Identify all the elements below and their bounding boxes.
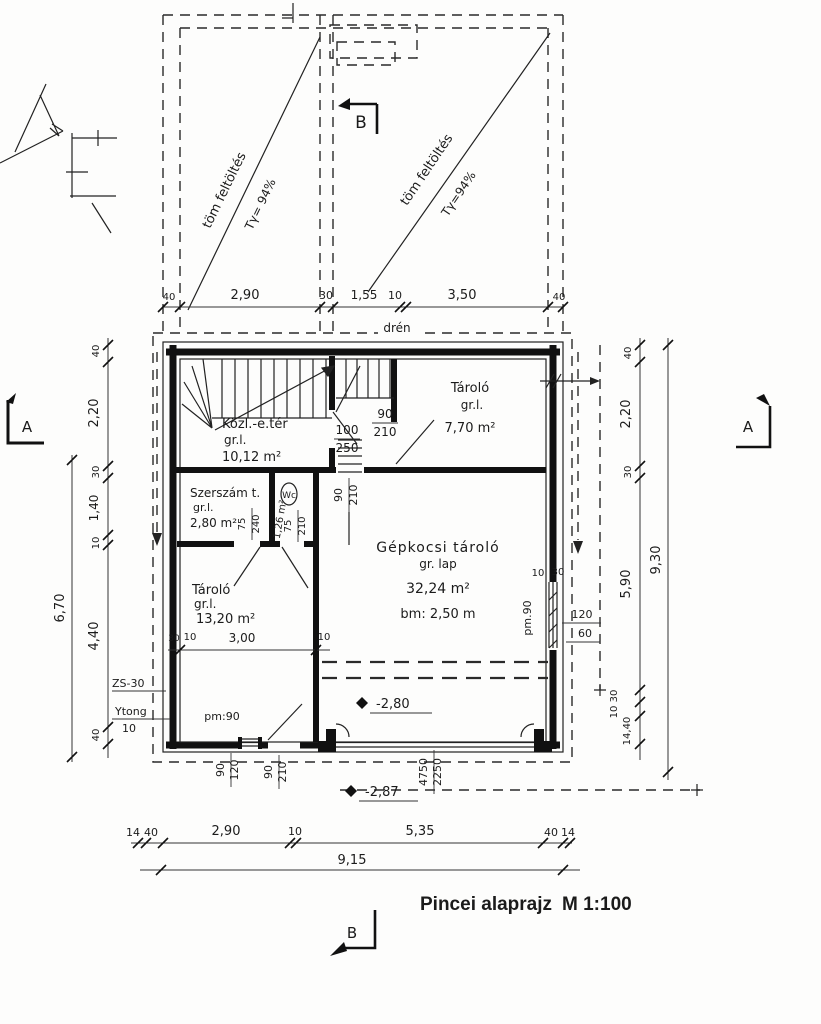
dim-label: 100 bbox=[336, 423, 359, 437]
bottom-door-swing bbox=[268, 704, 302, 740]
dim-total-left: 6,70 bbox=[53, 594, 68, 623]
floor-plan-page: töm feltöltés Tγ= 94% töm feltöltés Tγ=9… bbox=[0, 0, 821, 1024]
garage-dashed-lines bbox=[322, 662, 548, 678]
dim-label: 10 bbox=[609, 706, 620, 719]
drawing-title: Pincei alaprajz M 1:100 bbox=[420, 894, 632, 915]
dim-label: 250 bbox=[336, 441, 359, 455]
dim-label: 75 bbox=[283, 520, 294, 533]
dim-label: 2,90 bbox=[231, 288, 260, 303]
room-storage-left-floor: gr.l. bbox=[194, 597, 216, 611]
wc-door-swing bbox=[282, 547, 308, 588]
dim-label: 4750 bbox=[417, 758, 430, 786]
wc-label: Wc bbox=[282, 491, 296, 501]
garage-gate bbox=[318, 724, 552, 752]
section-label-b: B bbox=[347, 924, 357, 942]
drain-label: drén bbox=[383, 321, 410, 335]
dim-label: 40 bbox=[163, 292, 176, 303]
room-garage-height: bm: 2,50 m bbox=[400, 607, 475, 622]
dim-label: 5,35 bbox=[406, 824, 435, 839]
dim-label: 14 bbox=[561, 826, 575, 839]
dim-label: 2,20 bbox=[87, 399, 102, 428]
wall-type-label: ZS-30 bbox=[112, 677, 144, 690]
parapet-bottom-label: pm:90 bbox=[204, 710, 239, 723]
dim-label: 120 bbox=[572, 608, 593, 621]
dim-label: 14,40 bbox=[622, 717, 633, 746]
dimension-chain-top: 40 2,90 30 1,55 10 3,50 40 bbox=[158, 288, 568, 312]
level-garage: -2,80 bbox=[376, 697, 410, 712]
dim-label: 5,90 bbox=[619, 570, 634, 599]
dim-label: 10 bbox=[288, 825, 302, 838]
dim-label: 3,00 bbox=[229, 631, 256, 645]
room-tools-area: 2,80 m² bbox=[190, 516, 237, 530]
dim-label: 2,20 bbox=[619, 400, 634, 429]
dim-label: 10 bbox=[91, 537, 102, 550]
room-storage-left-name: Tároló bbox=[191, 583, 230, 598]
dimension-chain-right: 40 2,20 30 5,90 30 10 14,40 9,30 bbox=[609, 338, 673, 780]
block-type-label: Ytong bbox=[114, 705, 147, 718]
dim-label: 40 bbox=[91, 729, 102, 742]
dim-label: 240 bbox=[251, 514, 262, 533]
dimension-chain-bottom: 14 40 2,90 10 5,35 40 14 9,15 bbox=[126, 824, 580, 875]
dim-label: 40 bbox=[553, 292, 566, 303]
room-garage-area: 32,24 m² bbox=[406, 581, 470, 597]
room-tools-name: Szerszám t. bbox=[190, 486, 260, 500]
section-marker-b-top: B bbox=[338, 98, 377, 134]
section-label-b: B bbox=[355, 113, 367, 133]
room-hall-floor: gr.l. bbox=[224, 433, 246, 447]
dim-label: 120 bbox=[228, 760, 241, 781]
dim-label: 90 bbox=[377, 407, 392, 421]
section-marker-b-bottom: B bbox=[330, 910, 375, 956]
level-outside: -2,87 bbox=[365, 785, 399, 800]
dim-label: 10 bbox=[388, 289, 402, 302]
dim-total-right: 9,30 bbox=[649, 546, 664, 575]
backfill-right-value: Tγ=94% bbox=[438, 169, 479, 220]
room-storage-top-name: Tároló bbox=[450, 381, 489, 396]
dim-total-bottom: 9,15 bbox=[338, 853, 367, 868]
backfill-left-label: töm feltöltés bbox=[200, 150, 250, 231]
storage-top-door-swing bbox=[396, 420, 434, 464]
parapet-right-label: pm.90 bbox=[521, 600, 534, 635]
dim-label: 4,40 bbox=[87, 622, 102, 651]
dim-label: 40 bbox=[91, 345, 102, 358]
dim-label: 90 bbox=[332, 488, 345, 502]
dim-label: 40 bbox=[544, 826, 558, 839]
dim-label: 90 bbox=[214, 763, 227, 777]
dim-label: 30 bbox=[168, 634, 180, 644]
block-size-label: 10 bbox=[122, 722, 136, 735]
title-text: Pincei alaprajz bbox=[420, 894, 552, 915]
tools-door-swing bbox=[234, 547, 260, 586]
room-tools-floor: gr.l. bbox=[193, 501, 214, 514]
dim-label: 210 bbox=[347, 485, 360, 506]
section-marker-a-left: A bbox=[6, 393, 44, 443]
room-storage-left-area: 13,20 m² bbox=[196, 612, 255, 627]
dim-label: 75 bbox=[237, 518, 248, 531]
title-scale: M 1:100 bbox=[562, 894, 632, 915]
room-garage-name: Gépkocsi tároló bbox=[376, 540, 499, 556]
backfill-area: töm feltöltés Tγ= 94% töm feltöltés Tγ=9… bbox=[163, 3, 563, 333]
dim-label: 14 bbox=[126, 826, 140, 839]
wall-notes: ZS-30 Ytong 10 bbox=[112, 677, 170, 735]
dim-label: 10 bbox=[532, 568, 545, 579]
dim-label: 10 bbox=[184, 632, 197, 643]
section-label-a: A bbox=[743, 418, 754, 436]
dim-label: 210 bbox=[297, 516, 308, 535]
floor-plan-svg: töm feltöltés Tγ= 94% töm feltöltés Tγ=9… bbox=[0, 0, 821, 1024]
room-hall-area: 10,12 m² bbox=[222, 450, 281, 465]
room-hall-name: Közl.-e.tér bbox=[222, 417, 288, 432]
dim-label: 10 bbox=[318, 632, 331, 643]
right-window: 10 30 pm.90 120 60 bbox=[521, 374, 601, 648]
section-label-a: A bbox=[22, 418, 33, 436]
room-storage-top-floor: gr.l. bbox=[461, 398, 483, 412]
backfill-left-value: Tγ= 94% bbox=[242, 176, 279, 232]
sketch-north-arrow bbox=[0, 84, 117, 233]
room-garage-floor: gr. lap bbox=[419, 557, 456, 571]
dim-label: 3,50 bbox=[448, 288, 477, 303]
dim-label: 30 bbox=[609, 690, 620, 703]
section-marker-a-right: A bbox=[736, 394, 770, 447]
room-storage-top-area: 7,70 m² bbox=[445, 421, 496, 436]
dim-label: 40 bbox=[623, 347, 634, 360]
room-labels: Közl.-e.tér gr.l. 10,12 m² Tároló gr.l. … bbox=[190, 381, 500, 627]
dim-label: 30 bbox=[552, 567, 565, 578]
dim-label: 40 bbox=[144, 826, 158, 839]
dim-label: 210 bbox=[276, 762, 289, 783]
dim-label: 30 bbox=[91, 466, 102, 479]
dimension-chain-left: 40 2,20 30 1,40 10 4,40 40 6,70 bbox=[53, 338, 113, 762]
dim-label: 1,40 bbox=[87, 495, 101, 522]
dim-label: 210 bbox=[374, 425, 397, 439]
dim-label: 2,90 bbox=[212, 824, 241, 839]
dim-label: 2250 bbox=[431, 758, 444, 786]
dim-label: 1,55 bbox=[351, 288, 378, 302]
storage-inner-dim: 30 10 3,00 10 bbox=[168, 631, 330, 655]
staircase bbox=[182, 359, 394, 472]
dim-label: 30 bbox=[623, 466, 634, 479]
dim-label: 30 bbox=[319, 289, 333, 302]
dim-label: 90 bbox=[262, 765, 275, 779]
dim-label: 60 bbox=[578, 627, 592, 640]
